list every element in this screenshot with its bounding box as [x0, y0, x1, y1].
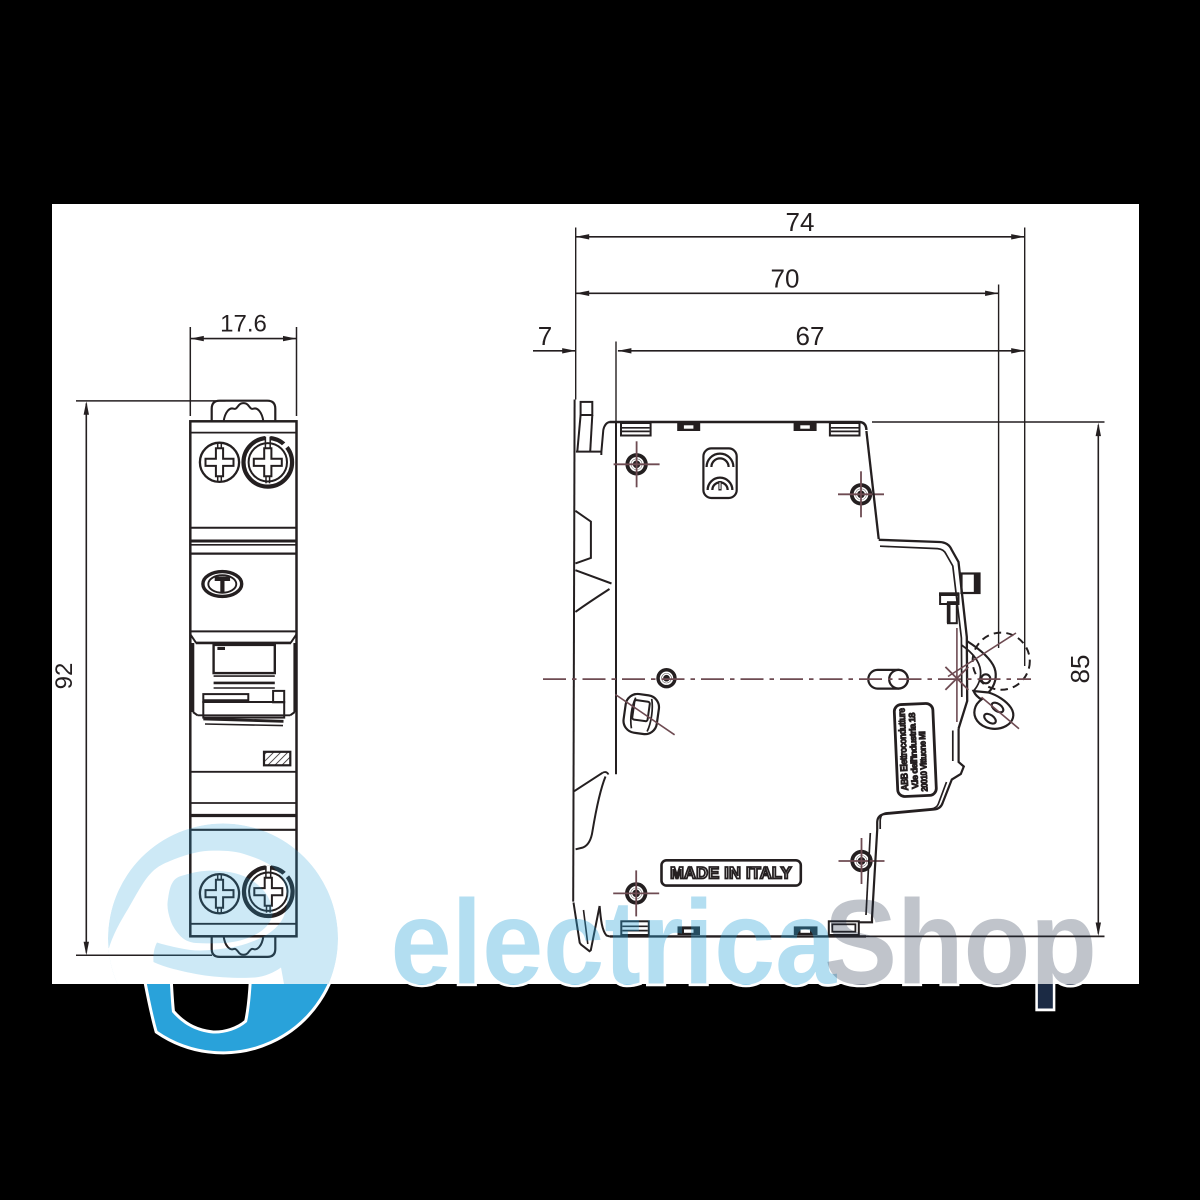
svg-text:electrica: electrica	[391, 876, 838, 984]
svg-text:Shop: Shop	[824, 876, 1097, 984]
